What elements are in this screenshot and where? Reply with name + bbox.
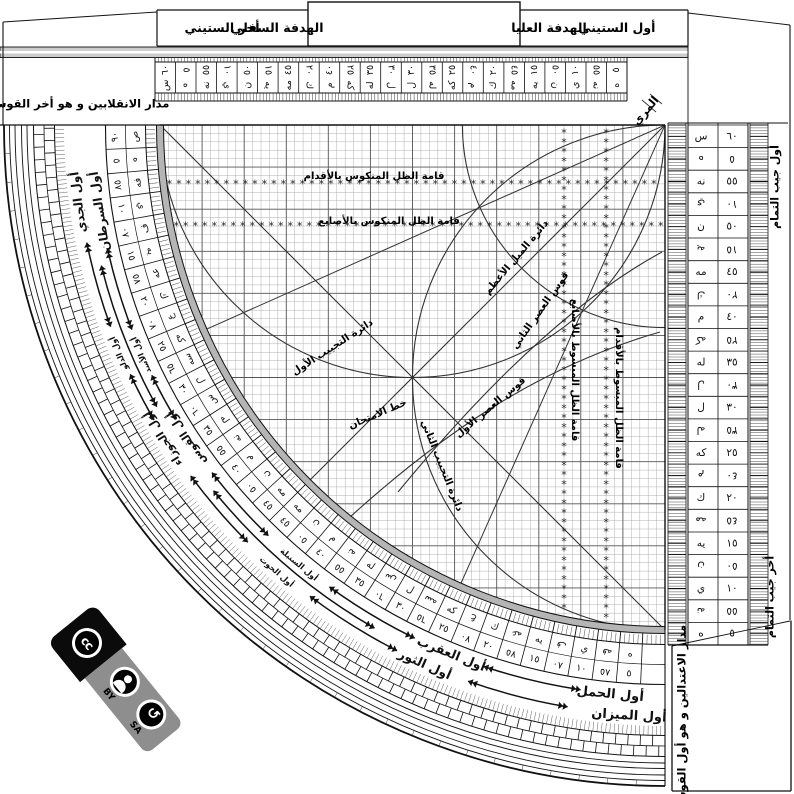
degree-number: ٨٠ (552, 658, 564, 671)
sine-grid: ****************************************… (160, 125, 665, 630)
degree-number: ١٠ (575, 662, 587, 674)
degree-number: ٨٥ (112, 179, 124, 190)
shadow-star: * (233, 177, 239, 190)
degree-number: ٥٥ (332, 561, 347, 576)
zodiac-arrow (484, 667, 581, 690)
degree-letter: ل (404, 583, 415, 596)
shadow-star: * (186, 177, 192, 190)
shadow-star: * (582, 220, 588, 233)
degree-number: ١٥ (124, 249, 137, 262)
degree-letter: فه (132, 177, 144, 188)
shadow-star: * (613, 177, 619, 190)
degree-number: ٧٥ (130, 272, 143, 285)
degree-letter: عه (510, 627, 523, 641)
top-scale-number: ٢٥ (447, 65, 458, 75)
shadow-star: * (496, 220, 502, 233)
degree-number: ٧٥ (505, 646, 518, 659)
shadow-star: * (610, 220, 616, 233)
shadow-star: * (262, 177, 268, 190)
strip-ruler-ticks (155, 54, 624, 101)
cosine-scale-number: ٤٥ (726, 515, 737, 527)
zodiac-label-cancer: أول السرطان (86, 170, 114, 252)
shadow-star: * (297, 220, 303, 233)
shadow-star: * (230, 220, 236, 233)
shadow-star: * (471, 177, 477, 190)
top-scale-letter: ه (180, 83, 191, 88)
shadow-star: * (183, 220, 189, 233)
shadow-star: * (490, 177, 496, 190)
shadow-star: * (648, 220, 654, 233)
degree-number: ٤٠ (313, 546, 328, 561)
cosine-scale-letter: ن (697, 560, 705, 572)
degree-letter: نه (231, 432, 244, 445)
top-scale-number: ١٠ (221, 65, 232, 75)
sight-block (308, 2, 520, 46)
shadow-star: * (287, 220, 293, 233)
shadow-star: * (585, 177, 591, 190)
shadow-star: * (515, 220, 521, 233)
cosine-scale-letter: ه (698, 153, 704, 165)
shadow-star: * (477, 220, 483, 233)
cosine-scale-number: ٣٥ (726, 424, 737, 436)
top-scale-letter: مه (283, 80, 294, 90)
arc-degree-scale: ص٩٠ه٥فه٨٥ي١٠ف٨٠يه١٥عه٧٥ك٢٠ع٧٠كه٢٥سه٦٥ل٣٠… (109, 131, 633, 680)
cc-sa-item: ↺ SA (122, 693, 173, 742)
degree-letter: ي (135, 201, 147, 210)
top-scale-letter: له (427, 81, 438, 89)
cosine-scale-letter: له (697, 356, 706, 368)
degree-letter: مه (275, 484, 290, 499)
degree-letter: ي (580, 643, 589, 655)
top-scale-number: ٥ (611, 67, 622, 72)
shadow-star: * (224, 177, 230, 190)
cc-icon-text: cc (78, 634, 95, 651)
cosine-scale-number: ١٠ (726, 198, 737, 210)
cosine-scale-letter: ك (697, 289, 706, 301)
cosine-scale-number: ٥٥ (726, 176, 737, 188)
shadow-star: * (651, 177, 657, 190)
degree-letter: ص (129, 131, 140, 143)
degree-number: ٣٥ (352, 575, 367, 590)
cosine-scale-number: ١٥ (726, 243, 737, 255)
top-scale-number: ٥٥ (591, 65, 602, 75)
shadow-star: * (518, 177, 524, 190)
cosine-scale-number: ٢٥ (726, 334, 737, 346)
shadow-star: * (202, 220, 208, 233)
top-scale-number: ٣٥ (427, 65, 438, 75)
top-scale-letter: ك (488, 81, 499, 89)
shadow-star: * (205, 177, 211, 190)
top-scale-letter: م (324, 82, 335, 88)
degree-number: ٢٥ (155, 340, 169, 354)
degree-number: ٨٥ (599, 666, 610, 678)
degree-letter: ن (309, 517, 322, 530)
top-scale-number: ٥ (180, 67, 191, 72)
cosine-scale-number: ٦٠ (726, 130, 737, 142)
degree-number: ٣٥ (200, 423, 215, 438)
degree-letter: له (218, 413, 232, 426)
degree-number: ٤٥ (260, 498, 275, 513)
shadow-star: * (211, 220, 217, 233)
cosine-scale-number: ٢٥ (726, 447, 737, 459)
shadow-star: * (240, 220, 246, 233)
tab-start-sixty: أول الستيني (579, 22, 656, 35)
degree-letter: سه (182, 351, 198, 368)
top-scale-number: ١٠ (570, 65, 581, 75)
sa-arrow-glyph: ↺ (143, 704, 163, 723)
tab-upper-sight: الهدفة العليا (511, 22, 587, 35)
top-scale-letter: ه (611, 83, 622, 88)
degree-number: ٣٠ (176, 382, 191, 396)
top-scale-number: ٢٥ (345, 65, 356, 75)
degree-letter: ع (468, 613, 478, 625)
sine-quadrant-diagram: ****************************************… (0, 0, 794, 794)
degree-number: ٥ (626, 668, 632, 679)
zodiac-arrow (130, 374, 154, 420)
shadow-star: * (509, 177, 515, 190)
shadow-star: * (306, 220, 312, 233)
cosine-scale-letter: يه (697, 537, 706, 549)
top-scale-number: ٥٠ (242, 65, 253, 75)
degree-letter: سه (422, 592, 439, 608)
shadow-star: * (629, 220, 635, 233)
top-scale-number: ٢٠ (488, 65, 499, 75)
degree-letter: نه (345, 546, 358, 559)
degree-number: ٤٠ (229, 462, 244, 477)
top-scale-letter: ن (550, 82, 561, 89)
degree-number: ٦٥ (415, 611, 429, 625)
degree-letter: له (364, 559, 377, 573)
degree-letter: ك (489, 620, 500, 633)
top-scale-letter: س (160, 79, 171, 91)
cosine-scale-letter: نه (697, 176, 706, 188)
degree-letter: ع (165, 312, 177, 322)
cosine-scale-number: ١٠ (726, 583, 737, 595)
degree-letter: عه (149, 267, 163, 280)
shadow-star: * (632, 177, 638, 190)
top-scale-number: ٣٠ (386, 65, 397, 75)
top-scale-number: ٤٥ (283, 65, 294, 75)
top-scale-number: ٤٠ (324, 65, 335, 75)
shadow-star: * (603, 611, 609, 624)
shadow-star: * (271, 177, 277, 190)
inverse-shadow-feet-label: قامة الظل المنكوس بالأقدام (304, 172, 445, 182)
cosine-scale-letter: مه (695, 515, 706, 527)
shadow-star: * (639, 220, 645, 233)
top-scale-number: ١٥ (529, 65, 540, 75)
cosine-scale-letter: يه (697, 243, 706, 255)
shadow-star: * (259, 220, 265, 233)
degree-letter: يه (144, 246, 157, 256)
shadow-star: * (572, 220, 578, 233)
cosine-scale-letter: ل (697, 379, 705, 391)
top-left-bevel (3, 12, 157, 22)
shadow-star: * (658, 220, 664, 233)
shadow-star: * (594, 177, 600, 190)
top-scale-letter: مه (509, 80, 520, 90)
shadow-star: * (461, 177, 467, 190)
degree-number: ٦٠ (187, 403, 202, 417)
shadow-star: * (176, 177, 182, 190)
degree-number: ٩٠ (109, 132, 120, 142)
top-scale-letter: م (468, 82, 479, 88)
cosine-scale-number: ٥٠ (726, 560, 737, 572)
degree-letter: يه (534, 634, 544, 647)
top-scale-number: ٤٠ (468, 65, 479, 75)
degree-number: ٥٠ (295, 531, 310, 546)
cosine-scale-letter: م (698, 469, 705, 481)
shadow-star: * (623, 177, 629, 190)
plane-shadow-digits-label: قامة الظل المبسوط بالأصابع (569, 299, 579, 442)
top-scale-number: ٥٥ (201, 65, 212, 75)
degree-letter: فه (602, 646, 613, 658)
shadow-star: * (249, 220, 255, 233)
shadow-star: * (547, 177, 553, 190)
shadow-star: * (195, 177, 201, 190)
cosine-scale-number: ٥ (729, 153, 735, 165)
degree-number: ٦٥ (165, 361, 179, 375)
top-scale-number: ٥٠ (550, 65, 561, 75)
top-scale-letter: ك (303, 81, 314, 89)
cosine-scale-number: ٣٠ (726, 379, 737, 391)
cosine-scale-number: ٤٠ (726, 469, 737, 481)
shadow-star: * (591, 220, 597, 233)
degree-letter: كه (445, 603, 459, 617)
shadow-star: * (642, 177, 648, 190)
tab-lower-sight: الهدفة السفلي (230, 22, 323, 35)
zodiac-band: أول الجديأول السرطانأول الدلوأول الأسدأو… (66, 170, 667, 725)
degree-number: ٦٠ (372, 588, 386, 603)
cosine-scale-letter: ي (697, 583, 705, 595)
cosine-scale-letter: ك (697, 492, 706, 504)
top-scale-letter: ن (242, 82, 253, 89)
cosine-scale-letter: كه (696, 447, 707, 459)
shadow-star: * (499, 177, 505, 190)
degree-number: ٥ (111, 158, 122, 164)
degree-letter: كه (173, 332, 187, 346)
top-scale-letter: يه (529, 81, 540, 89)
cosine-scale-number: ١٥ (726, 537, 737, 549)
top-sixty-scale: ٦٠س٥ه٥٥نه١٠ي٥٠ن١٥يه٤٥مه٢٠ك٤٠م٢٥كه٣٥له٣٠ل… (155, 54, 662, 112)
top-scale-number: ١٥ (262, 65, 273, 75)
degree-letter: ه (130, 157, 141, 163)
shadow-star: * (561, 602, 567, 615)
shadow-star: * (290, 177, 296, 190)
top-scale-letter: كه (447, 80, 458, 90)
cosine-scale-number: ٣٠ (726, 402, 737, 414)
first-asr-curve (320, 332, 660, 545)
cosine-scale-letter: م (698, 311, 705, 323)
zodiac-arrow (212, 473, 268, 536)
top-scale-letter: كه (345, 80, 356, 90)
degree-number: ٥٥ (214, 443, 229, 458)
degree-letter: مه (291, 500, 306, 515)
degree-letter: س (382, 570, 398, 585)
top-scale-letter: ل (386, 82, 397, 89)
shadow-star: * (468, 220, 474, 233)
degree-letter: ك (157, 290, 170, 301)
degree-number: ٤٥ (277, 515, 292, 530)
top-scale-number: ٤٥ (509, 65, 520, 75)
degree-number: ١٥ (528, 653, 541, 666)
cosine-scale-letter: ن (697, 221, 705, 233)
shadow-star: * (525, 220, 531, 233)
top-scale-letter: نه (591, 81, 602, 89)
top-scale-letter: يه (262, 81, 273, 89)
degree-number: ٢٥ (437, 621, 451, 635)
degree-letter: م (328, 532, 340, 544)
degree-number: ٥٠ (244, 480, 259, 495)
cc-icon: cc (66, 622, 108, 664)
zodiac-arrows (87, 243, 581, 707)
cc-by-item: BY (95, 660, 146, 709)
top-scale-number: ٣٠ (406, 65, 417, 75)
degree-number: ٢٠ (137, 295, 151, 308)
shadow-star: * (575, 177, 581, 190)
shadow-star: * (452, 177, 458, 190)
top-scale-letter: ي (570, 82, 581, 89)
degree-letter: ف (556, 638, 568, 651)
degree-number: ٨٠ (119, 226, 132, 238)
cosine-scale-letter: ه (698, 628, 704, 640)
degree-letter: س (204, 392, 219, 408)
cosine-scale-letter: له (697, 424, 706, 436)
shadow-star: * (620, 220, 626, 233)
zodiac-label-aries: أول الحمل (576, 682, 645, 705)
cosine-scale-letter: ل (697, 402, 705, 414)
zodiac-label-libra: أول الميزان (591, 704, 667, 726)
shadow-star: * (252, 177, 258, 190)
degree-letter: ن (260, 468, 273, 481)
degree-letter: م (246, 451, 258, 463)
degree-number: ٧٠ (145, 318, 159, 332)
shadow-star: * (268, 220, 274, 233)
inverse-shadow-digits-label: قامة الظل المنكوس بالأصابع (318, 217, 460, 227)
top-scale-number: ٢٠ (303, 65, 314, 75)
cosine-scale-number: ٥٥ (726, 605, 737, 617)
degree-letter: ه (627, 648, 633, 659)
shadow-star: * (221, 220, 227, 233)
shadow-star: * (553, 220, 559, 233)
solstice-orbit-label: مدار الانقلابين و هو أخر القوس (0, 98, 169, 110)
equinox-orbit-label: مدار الاعتدالين و هو أول القوس (676, 625, 688, 794)
top-scale-number: ٦٠ (160, 65, 171, 75)
shadow-star: * (192, 220, 198, 233)
top-scale-letter: له (365, 81, 376, 89)
cosine-scale-letter: ي (697, 198, 705, 210)
shadow-star: * (281, 177, 287, 190)
top-scale-letter: نه (201, 81, 212, 89)
cosine-scale-letter: كه (696, 334, 707, 346)
shadow-star: * (506, 220, 512, 233)
cosine-scale-number: ٤٠ (726, 311, 737, 323)
top-scale-letter: ي (221, 82, 232, 89)
degree-number: ٣٠ (393, 600, 407, 615)
shadow-star: * (278, 220, 284, 233)
shadow-star: * (528, 177, 534, 190)
cosine-scale-number: ٢٠ (726, 492, 737, 504)
degree-letter: ل (194, 374, 207, 385)
shadow-star: * (537, 177, 543, 190)
cosine-end-label: أخر جيب التمام (765, 556, 776, 638)
zodiac-label-capricorn: أول الجدي (66, 171, 90, 234)
shadow-star: * (214, 177, 220, 190)
shadow-star: * (243, 177, 249, 190)
cosine-scale-number: ٤٥ (726, 266, 737, 278)
plane-shadow-feet-label: قامة الظل المبسوط بالأقدام (613, 327, 623, 469)
cosine-scale-letter: نه (697, 605, 706, 617)
cosine-scale-letter: مه (695, 266, 706, 278)
cosine-start-label: أول جيب التمام (770, 145, 781, 229)
degree-number: ١٠ (115, 203, 127, 215)
shadow-star: * (480, 177, 486, 190)
top-scale-letter: ل (406, 82, 417, 89)
cosine-scale-number: ٥٠ (726, 221, 737, 233)
cosine-scale-number: ٣٥ (726, 356, 737, 368)
cosine-scale-number: ٢٠ (726, 289, 737, 301)
top-right-bevel (688, 13, 790, 25)
degree-number: ٧٠ (459, 631, 473, 645)
degree-letter: ف (139, 222, 152, 234)
shadow-star: * (487, 220, 493, 233)
top-scale-number: ٣٥ (365, 65, 376, 75)
degree-number: ٢٠ (482, 639, 495, 653)
cosine-scale-letter: س (695, 130, 708, 142)
